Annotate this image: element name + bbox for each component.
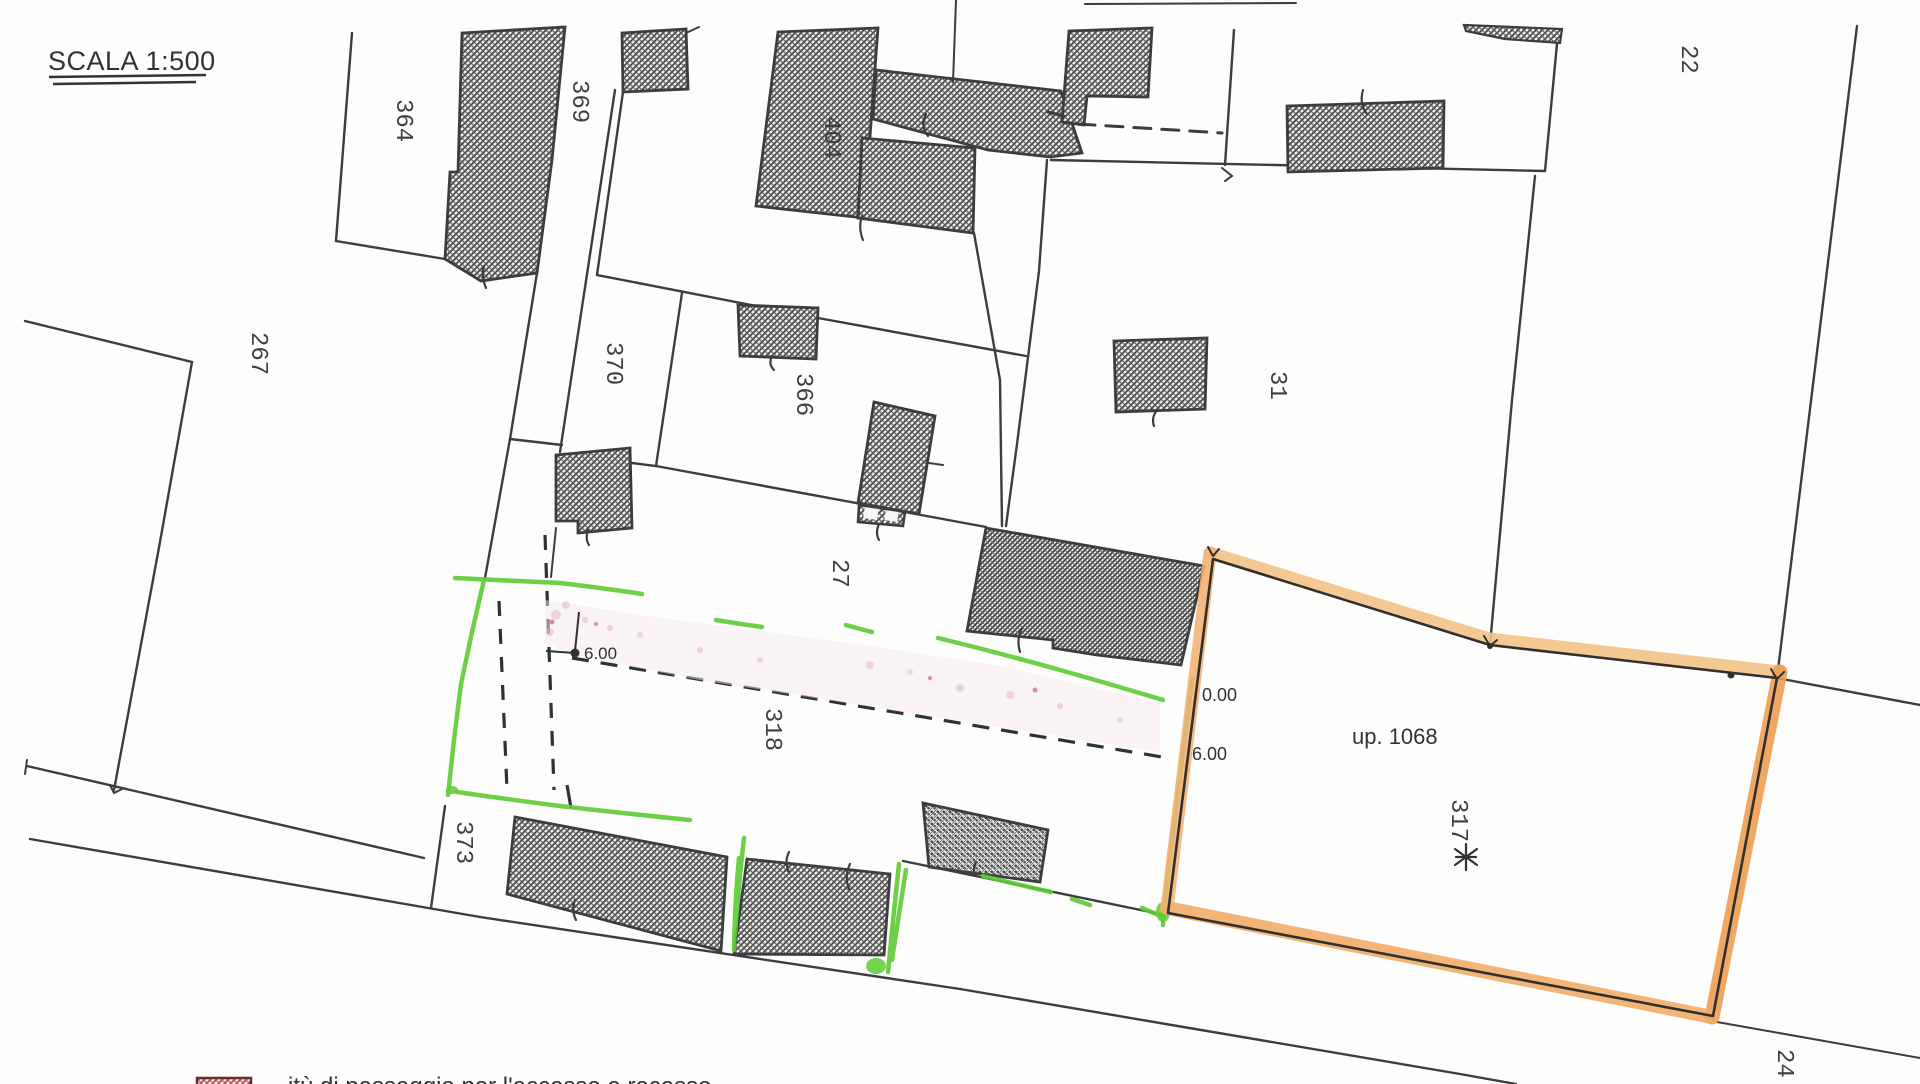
svg-text:27: 27 [825, 559, 852, 588]
svg-text:370: 370 [599, 342, 626, 385]
svg-text:0.00: 0.00 [1202, 685, 1237, 705]
svg-text:6.00: 6.00 [1192, 744, 1227, 764]
svg-text:31: 31 [1263, 371, 1290, 400]
svg-text:404: 404 [817, 116, 844, 159]
svg-text:24: 24 [1770, 1049, 1797, 1078]
svg-text:267: 267 [244, 332, 271, 375]
svg-text:SCALA 1:500: SCALA 1:500 [48, 46, 216, 76]
svg-text:up. 1068: up. 1068 [1352, 724, 1438, 749]
svg-text:22: 22 [1674, 45, 1701, 74]
svg-text:317: 317 [1444, 799, 1471, 842]
svg-text:369: 369 [565, 80, 592, 123]
svg-text:366: 366 [789, 373, 816, 416]
svg-text:6.00: 6.00 [584, 644, 617, 663]
svg-text:364: 364 [389, 99, 416, 142]
svg-text:373: 373 [449, 821, 476, 864]
svg-text:318: 318 [758, 708, 785, 751]
svg-text:itù di passaggio per l'accesso: itù di passaggio per l'accesso e recesso [288, 1073, 711, 1084]
